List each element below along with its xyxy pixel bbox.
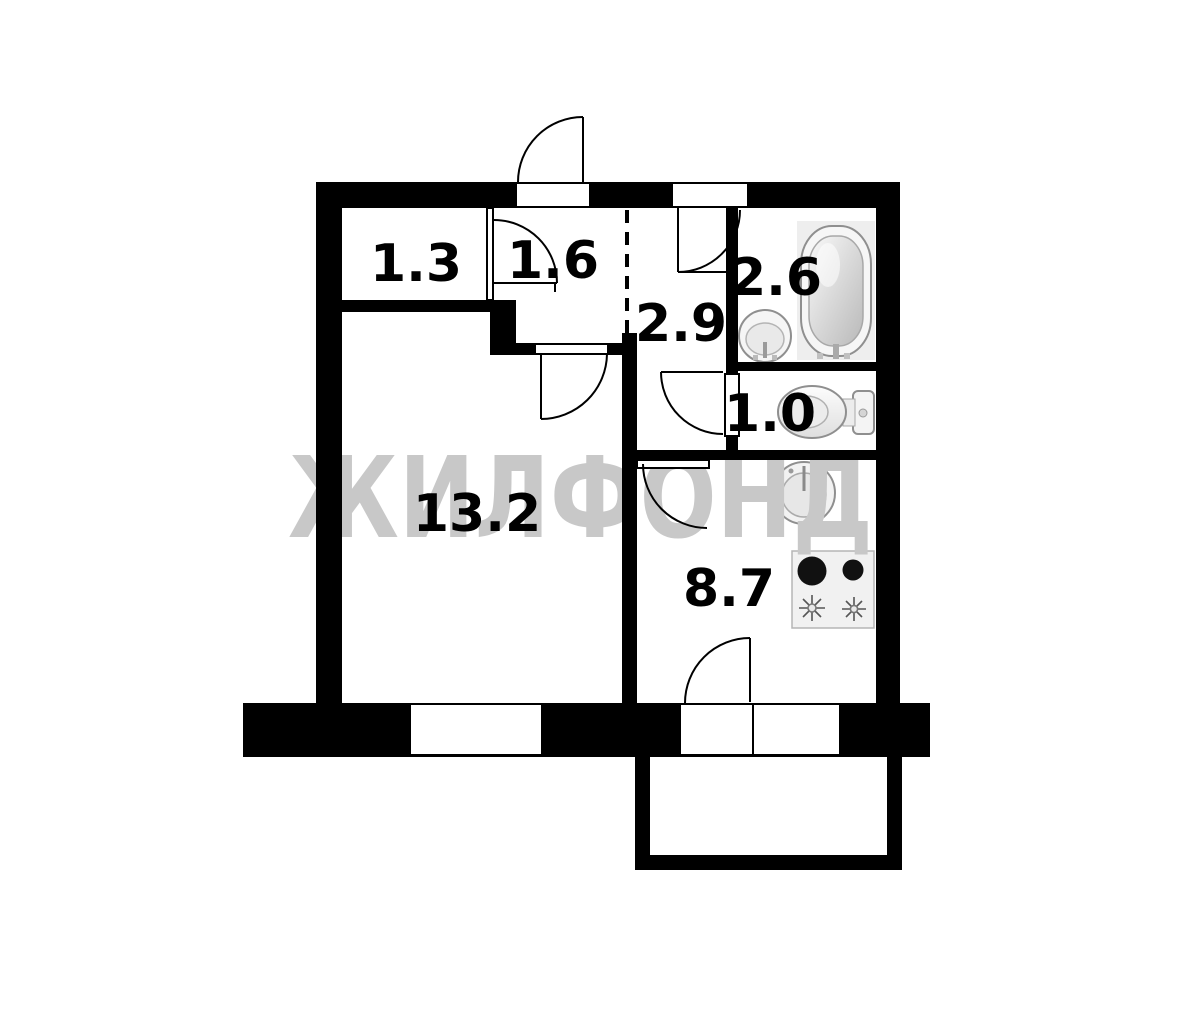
living-room-window	[410, 704, 542, 755]
balcony-wall-bottom	[635, 855, 902, 870]
wall-top	[316, 182, 900, 208]
floor-plan-drawing: ЖИЛФОНД	[0, 0, 1182, 1021]
washbasin-tap	[763, 342, 767, 358]
toilet-flush-button	[859, 409, 867, 417]
wall-right	[876, 182, 900, 703]
washbasin-knob-left	[753, 355, 758, 360]
closet-partition	[487, 208, 493, 300]
wall-left	[316, 182, 342, 703]
bathtub-handle-right	[844, 353, 850, 359]
washbasin-knob-right	[772, 355, 777, 360]
living-room-door-opening	[535, 344, 608, 354]
room-label-closet-right: 1.6	[507, 231, 599, 291]
room-label-toilet: 1.0	[724, 384, 816, 444]
hallway-top-opening	[672, 183, 748, 207]
room-label-living-room: 13.2	[413, 484, 541, 544]
room-label-bathroom: 2.6	[730, 248, 822, 308]
room-label-kitchen: 8.7	[683, 559, 775, 619]
bathtub-faucet	[833, 344, 839, 359]
bathtub-handle-left	[817, 353, 823, 359]
wall-central	[622, 333, 637, 703]
floor-plan-canvas: ЖИЛФОНД	[0, 0, 1182, 1021]
balcony-wall-left	[635, 757, 650, 870]
wall-below-closet-left	[342, 300, 516, 312]
wall-bathroom-toilet	[726, 362, 876, 371]
kitchen-door-leaf	[637, 460, 709, 468]
washbasin	[739, 310, 791, 362]
room-label-closet-left: 1.3	[370, 234, 462, 294]
balcony-door-window-unit	[680, 704, 840, 755]
balcony-wall-right	[887, 757, 902, 870]
entrance-opening	[516, 183, 590, 207]
wall-kitchen-top	[622, 450, 876, 460]
room-label-hallway: 2.9	[635, 294, 727, 354]
